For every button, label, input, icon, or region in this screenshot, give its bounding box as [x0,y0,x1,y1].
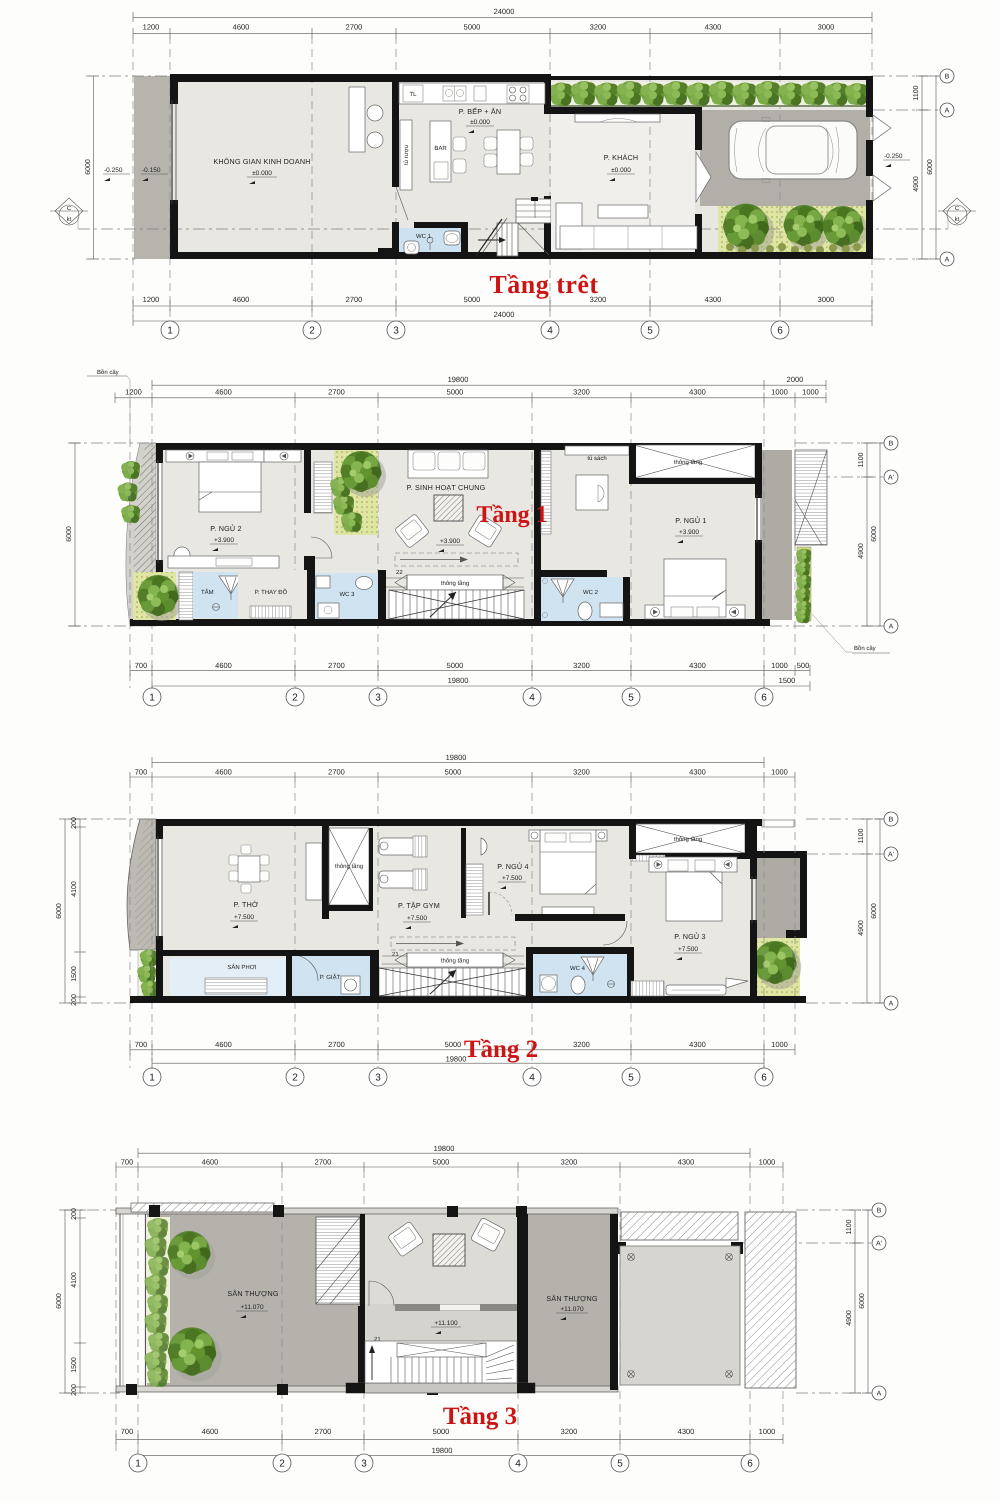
svg-text:3: 3 [393,326,399,337]
svg-text:4600: 4600 [202,1427,219,1436]
svg-text:-0.250: -0.250 [104,167,123,174]
svg-text:6: 6 [761,693,767,704]
svg-text:3: 3 [375,693,381,704]
svg-text:6000: 6000 [927,159,934,175]
svg-text:tủ sách: tủ sách [587,455,606,462]
svg-text:C: C [955,205,960,212]
svg-text:5000: 5000 [464,295,481,304]
svg-text:P. BẾP + ĂN: P. BẾP + ĂN [459,107,502,116]
svg-text:+3.900: +3.900 [440,538,460,545]
svg-text:4300: 4300 [705,23,722,32]
svg-text:4600: 4600 [215,388,232,397]
svg-text:4900: 4900 [858,920,865,936]
svg-text:+11.070: +11.070 [560,1306,584,1313]
svg-text:KHÔNG GIAN KINH DOANH: KHÔNG GIAN KINH DOANH [213,157,310,166]
svg-text:1200: 1200 [143,23,160,32]
svg-text:P. NGỦ 3: P. NGỦ 3 [674,932,705,941]
svg-text:2700: 2700 [328,388,345,397]
svg-text:P. THAY ĐỒ: P. THAY ĐỒ [255,588,288,596]
svg-text:1: 1 [135,1459,141,1470]
svg-text:6000: 6000 [871,903,878,919]
svg-text:WC 3: WC 3 [340,591,356,598]
svg-text:A: A [945,108,950,115]
svg-text:+11.070: +11.070 [240,1304,264,1311]
svg-text:5000: 5000 [447,388,464,397]
svg-text:4900: 4900 [913,176,920,192]
svg-text:4600: 4600 [202,1158,219,1167]
svg-text:3: 3 [361,1459,367,1470]
svg-text:3200: 3200 [561,1427,578,1436]
svg-text:5000: 5000 [464,23,481,32]
svg-text:±0.000: ±0.000 [252,170,272,177]
svg-text:2: 2 [292,1073,298,1084]
svg-text:3: 3 [375,1073,381,1084]
svg-text:6000: 6000 [871,526,878,542]
svg-text:kt: kt [67,216,72,223]
svg-text:1500: 1500 [71,1357,78,1373]
svg-text:B: B [889,817,894,824]
svg-text:1100: 1100 [858,452,865,467]
svg-text:3200: 3200 [573,768,590,777]
svg-text:700: 700 [135,768,148,777]
svg-text:4300: 4300 [689,661,706,670]
svg-text:5: 5 [628,693,634,704]
svg-text:thông tầng: thông tầng [674,459,702,466]
svg-text:1000: 1000 [759,1158,776,1167]
svg-text:C: C [67,205,72,212]
svg-text:2: 2 [279,1459,285,1470]
svg-text:kt: kt [955,216,960,223]
svg-text:6000: 6000 [56,1293,63,1309]
svg-text:2700: 2700 [328,1040,345,1049]
svg-text:200: 200 [71,994,78,1006]
svg-text:A': A' [876,1241,882,1248]
svg-text:P. GIẶT: P. GIẶT [320,973,341,981]
svg-text:thông tầng: thông tầng [674,836,702,843]
svg-text:700: 700 [135,661,148,670]
svg-text:1000: 1000 [771,661,788,670]
svg-text:6000: 6000 [66,526,73,542]
svg-text:Tầng trêt: Tầng trêt [489,270,598,299]
svg-text:5000: 5000 [433,1427,450,1436]
svg-text:4100: 4100 [71,881,78,897]
svg-text:-0.250: -0.250 [884,153,903,160]
svg-text:4: 4 [529,1073,535,1084]
svg-text:-0.150: -0.150 [142,167,161,174]
svg-text:1: 1 [149,693,155,704]
svg-text:B: B [877,1208,882,1215]
svg-text:thông tầng: thông tầng [441,580,469,587]
svg-text:19800: 19800 [448,375,469,384]
svg-text:22: 22 [396,569,403,576]
svg-text:21: 21 [392,951,399,958]
svg-text:200: 200 [71,1208,78,1220]
svg-text:24000: 24000 [494,310,515,319]
svg-text:4300: 4300 [705,295,722,304]
svg-text:B: B [889,441,894,448]
svg-text:+3.900: +3.900 [679,529,699,536]
svg-text:2700: 2700 [315,1158,332,1167]
svg-text:Tầng 1: Tầng 1 [476,502,547,528]
svg-text:1100: 1100 [858,828,865,843]
svg-text:6: 6 [777,326,783,337]
svg-text:4600: 4600 [215,768,232,777]
svg-text:1000: 1000 [802,388,819,397]
svg-text:+7.500: +7.500 [234,914,254,921]
svg-text:6000: 6000 [859,1293,866,1309]
svg-text:A: A [945,257,950,264]
svg-text:200: 200 [71,817,78,829]
svg-text:thông tầng: thông tầng [335,863,363,870]
svg-text:3200: 3200 [573,388,590,397]
svg-text:A': A' [888,475,894,482]
svg-text:3200: 3200 [590,295,607,304]
svg-text:2700: 2700 [346,23,363,32]
svg-text:500: 500 [797,661,810,670]
svg-text:2: 2 [309,326,315,337]
svg-text:3200: 3200 [573,1040,590,1049]
svg-text:2700: 2700 [328,768,345,777]
svg-text:P. KHÁCH: P. KHÁCH [604,153,639,162]
svg-text:±0.000: ±0.000 [611,167,631,174]
svg-text:Bồn cây: Bồn cây [854,645,876,652]
svg-text:WC 2: WC 2 [583,589,599,596]
svg-text:4900: 4900 [846,1310,853,1326]
svg-text:6000: 6000 [56,903,63,919]
svg-text:P. NGỦ 4: P. NGỦ 4 [497,862,528,871]
svg-text:3000: 3000 [818,295,835,304]
svg-text:2700: 2700 [328,661,345,670]
svg-text:5: 5 [617,1459,623,1470]
svg-text:4300: 4300 [689,768,706,777]
svg-text:2000: 2000 [787,375,804,384]
svg-text:A: A [889,624,894,631]
svg-text:TL: TL [409,91,417,98]
svg-text:3200: 3200 [573,661,590,670]
svg-text:1200: 1200 [143,295,160,304]
svg-text:1200: 1200 [125,388,142,397]
svg-text:6000: 6000 [85,159,92,175]
svg-text:Bồn cây: Bồn cây [97,369,119,376]
svg-text:B: B [945,74,950,81]
svg-text:19800: 19800 [448,676,469,685]
svg-text:3200: 3200 [561,1158,578,1167]
svg-text:5000: 5000 [447,661,464,670]
svg-text:4: 4 [515,1459,521,1470]
svg-text:5000: 5000 [433,1158,450,1167]
svg-text:19800: 19800 [446,753,467,762]
svg-text:Tầng 3: Tầng 3 [443,1403,517,1430]
svg-text:19800: 19800 [434,1144,455,1153]
svg-text:4: 4 [529,693,535,704]
svg-text:6: 6 [747,1459,753,1470]
svg-text:4900: 4900 [858,543,865,559]
svg-text:P. THỜ: P. THỜ [234,900,259,909]
svg-text:+3.900: +3.900 [214,537,234,544]
svg-text:4600: 4600 [215,661,232,670]
svg-text:1100: 1100 [913,85,920,100]
svg-text:SÂN THƯỢNG: SÂN THƯỢNG [546,1294,598,1303]
svg-text:tủ rượu: tủ rượu [403,145,410,165]
svg-text:1100: 1100 [846,1219,853,1234]
svg-text:4100: 4100 [71,1272,78,1288]
svg-text:4600: 4600 [233,295,250,304]
svg-text:5000: 5000 [445,768,462,777]
svg-text:BAR: BAR [434,145,447,152]
svg-text:5: 5 [647,326,653,337]
svg-text:700: 700 [121,1427,134,1436]
svg-text:4300: 4300 [678,1427,695,1436]
svg-text:Tầng 2: Tầng 2 [464,1036,538,1063]
svg-text:A': A' [888,852,894,859]
svg-text:1500: 1500 [71,966,78,982]
svg-text:WC 4: WC 4 [570,965,586,972]
svg-text:4300: 4300 [689,388,706,397]
svg-text:+7.500: +7.500 [678,946,698,953]
svg-text:4300: 4300 [689,1040,706,1049]
svg-text:200: 200 [71,1384,78,1396]
svg-text:±0.000: ±0.000 [470,119,490,126]
svg-text:1500: 1500 [779,676,796,685]
svg-text:24000: 24000 [494,7,515,16]
svg-text:+11.100: +11.100 [434,1320,458,1327]
svg-text:P. SINH HOẠT CHUNG: P. SINH HOẠT CHUNG [407,483,486,492]
svg-text:5000: 5000 [445,1040,462,1049]
svg-text:2700: 2700 [346,295,363,304]
svg-text:1000: 1000 [759,1427,776,1436]
svg-text:6: 6 [761,1073,767,1084]
svg-text:thông tầng: thông tầng [441,958,469,965]
svg-text:700: 700 [135,1040,148,1049]
svg-text:19800: 19800 [432,1446,453,1455]
svg-text:2: 2 [292,693,298,704]
svg-text:+7.500: +7.500 [407,915,427,922]
svg-text:3000: 3000 [818,23,835,32]
svg-text:1: 1 [167,326,173,337]
svg-text:1000: 1000 [771,1040,788,1049]
svg-text:A: A [889,1001,894,1008]
svg-text:A: A [877,1391,882,1398]
svg-text:P. NGỦ 1: P. NGỦ 1 [675,516,706,525]
svg-text:TẮM: TẮM [201,588,214,596]
svg-text:4: 4 [547,326,553,337]
svg-text:3200: 3200 [590,23,607,32]
svg-text:WC 1: WC 1 [416,233,432,240]
svg-text:4300: 4300 [678,1158,695,1167]
svg-text:4600: 4600 [215,1040,232,1049]
svg-text:1: 1 [149,1073,155,1084]
svg-text:1000: 1000 [771,388,788,397]
svg-text:5: 5 [628,1073,634,1084]
svg-text:P. TẬP GYM: P. TẬP GYM [398,901,440,910]
svg-text:2700: 2700 [315,1427,332,1436]
svg-text:1000: 1000 [771,768,788,777]
svg-text:SÂN PHƠI: SÂN PHƠI [227,963,256,971]
svg-text:SÂN THƯỢNG: SÂN THƯỢNG [227,1289,279,1298]
svg-text:P. NGỦ 2: P. NGỦ 2 [210,524,241,533]
svg-text:700: 700 [121,1158,134,1167]
svg-text:4600: 4600 [233,23,250,32]
svg-text:+7.500: +7.500 [502,875,522,882]
